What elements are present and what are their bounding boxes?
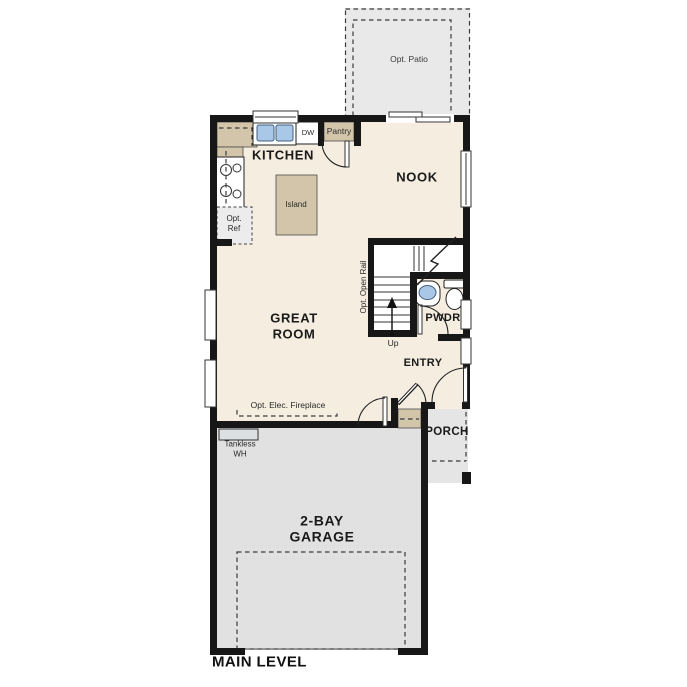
garage-line2: GARAGE <box>289 528 354 544</box>
wall-frontdoor-mid <box>427 402 435 409</box>
wall-garage-right <box>421 402 428 655</box>
feature-label-dishwasher: DW <box>302 128 315 138</box>
great-room-line1: GREAT <box>270 311 318 326</box>
entry-window <box>461 338 471 364</box>
sliding-door-panel <box>416 117 450 122</box>
pantry-door-leaf <box>345 141 349 167</box>
greatroom-window <box>205 290 216 340</box>
feature-label-island: Island <box>285 200 306 210</box>
room-label-kitchen: KITCHEN <box>252 148 314 163</box>
tankless-line2: WH <box>233 449 246 458</box>
feature-label-opt-ref: Opt.Ref <box>226 214 241 234</box>
room-label-entry: ENTRY <box>404 357 443 369</box>
annotation-fireplace: Opt. Elec. Fireplace <box>251 400 326 410</box>
wall-frontdoor-corner <box>462 402 470 409</box>
room-label-nook: NOOK <box>396 170 437 185</box>
room-label-great-room: GREATROOM <box>270 311 318 342</box>
powder-window <box>461 300 471 329</box>
area-label-opt-patio: Opt. Patio <box>390 54 428 64</box>
garage-line1: 2-BAY <box>300 513 344 529</box>
opt-ref-line2: Ref <box>228 224 240 233</box>
front-door-leaf <box>464 367 468 402</box>
sink-basin <box>257 125 274 141</box>
wall-porch-stub <box>462 472 471 484</box>
tankless-water-heater <box>219 429 258 440</box>
floor-plan: KITCHEN NOOK GREATROOM Island Pantry DW … <box>0 0 687 687</box>
annotation-opt-open-rail: Opt. Open Rail <box>359 261 369 314</box>
sliding-door-panel <box>389 112 422 117</box>
powder-sink-basin <box>419 286 436 300</box>
wall-garage-bottom-right <box>398 648 428 655</box>
wall-pantry-right <box>354 115 361 146</box>
plan-title: MAIN LEVEL <box>212 654 307 671</box>
wall-powder-left <box>410 272 417 337</box>
floor-plan-drawing <box>0 0 687 687</box>
wall-powder-top <box>410 272 470 279</box>
annotation-stairs-up: Up <box>388 338 399 348</box>
annotation-tankless-wh: TanklessWH <box>224 440 255 459</box>
room-label-garage: 2-BAYGARAGE <box>289 514 354 545</box>
counter-top-run <box>217 122 257 147</box>
greatroom-entry-door-leaf <box>383 397 387 426</box>
porch-floor <box>428 409 468 483</box>
greatroom-window <box>205 360 216 407</box>
wall-counter-stub <box>217 239 232 246</box>
toilet-bowl <box>446 289 463 310</box>
wall-pantry-left <box>318 115 324 146</box>
sink-basin <box>276 125 293 141</box>
great-room-line2: ROOM <box>273 326 316 341</box>
powder-door-leaf <box>418 305 422 334</box>
wall-greatroom-garage <box>210 421 398 428</box>
room-label-porch: PORCH <box>425 426 469 438</box>
opt-ref-line1: Opt. <box>226 214 241 223</box>
tankless-line1: Tankless <box>224 440 255 449</box>
toilet-tank <box>444 280 465 288</box>
room-label-powder: PWDR <box>425 312 460 324</box>
feature-label-pantry: Pantry <box>327 126 352 136</box>
